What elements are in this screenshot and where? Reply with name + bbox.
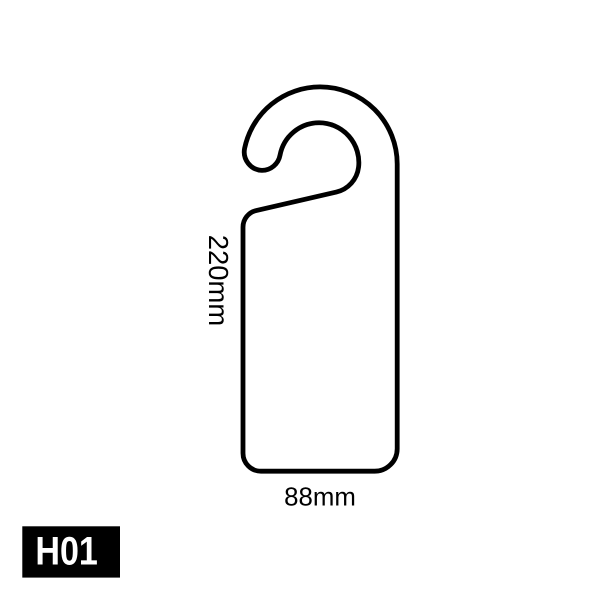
svg-text:H01: H01 xyxy=(35,530,98,574)
svg-text:220mm: 220mm xyxy=(203,235,234,326)
svg-text:88mm: 88mm xyxy=(284,484,356,512)
